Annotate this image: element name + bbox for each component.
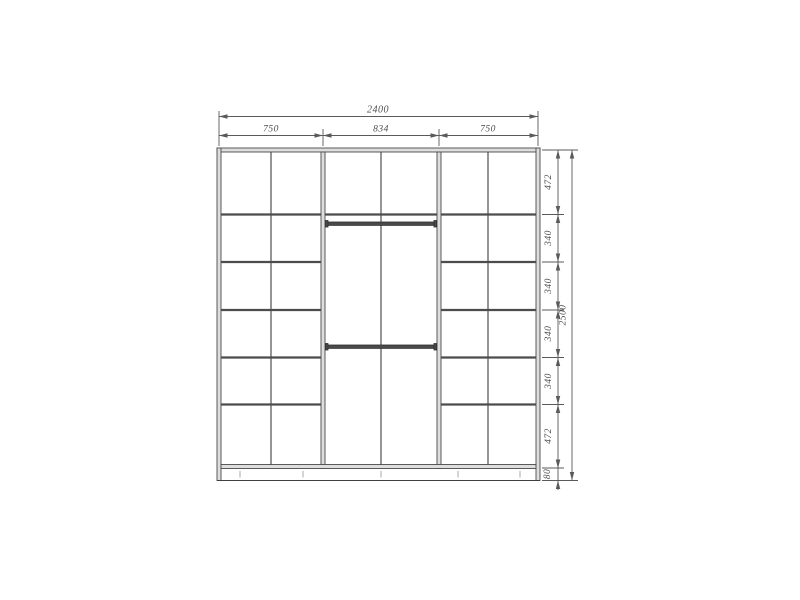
rod-end-bracket: [326, 344, 329, 351]
partition-right: [437, 152, 441, 469]
left-side-panel: [217, 148, 221, 481]
dim-label-total-height: 2500: [559, 305, 569, 326]
dim-label-row-3: 340: [544, 326, 554, 343]
rod-end-bracket: [434, 221, 437, 228]
dim-label-plinth: 80: [543, 469, 553, 480]
dim-label-row-5: 472: [544, 428, 554, 444]
dim-label-section-right: 750: [480, 125, 496, 135]
rod-end-bracket: [434, 344, 437, 351]
dim-label-section-middle: 834: [373, 125, 389, 135]
dim-label-row-1: 340: [544, 230, 554, 247]
dimensions-top: 2400 750 834 750: [219, 105, 538, 147]
drawing-canvas: 2400 750 834 750 472 340 340 340 340: [0, 0, 800, 600]
hanging-rod-bottom: [327, 345, 435, 348]
rod-end-bracket: [326, 221, 329, 228]
dim-label-section-left: 750: [263, 125, 279, 135]
left-column-shelving: [221, 152, 321, 465]
bottom-panel: [221, 465, 536, 469]
middle-column-hanging-section: [325, 152, 437, 465]
right-side-panel: [536, 148, 540, 481]
dim-label-row-4: 340: [544, 373, 554, 390]
dim-label-row-2: 340: [544, 278, 554, 295]
wardrobe-technical-drawing: 2400 750 834 750 472 340 340 340 340: [0, 0, 800, 600]
top-panel: [217, 148, 540, 152]
hanging-rod-top: [327, 222, 435, 225]
dim-label-total-width: 2400: [367, 105, 389, 116]
dim-label-row-0: 472: [544, 174, 554, 190]
dimensions-right: 472 340 340 340 340 472 80 2500: [542, 150, 578, 490]
partition-left: [321, 152, 325, 469]
wardrobe-carcass: [217, 148, 540, 481]
right-column-shelving: [441, 152, 536, 465]
